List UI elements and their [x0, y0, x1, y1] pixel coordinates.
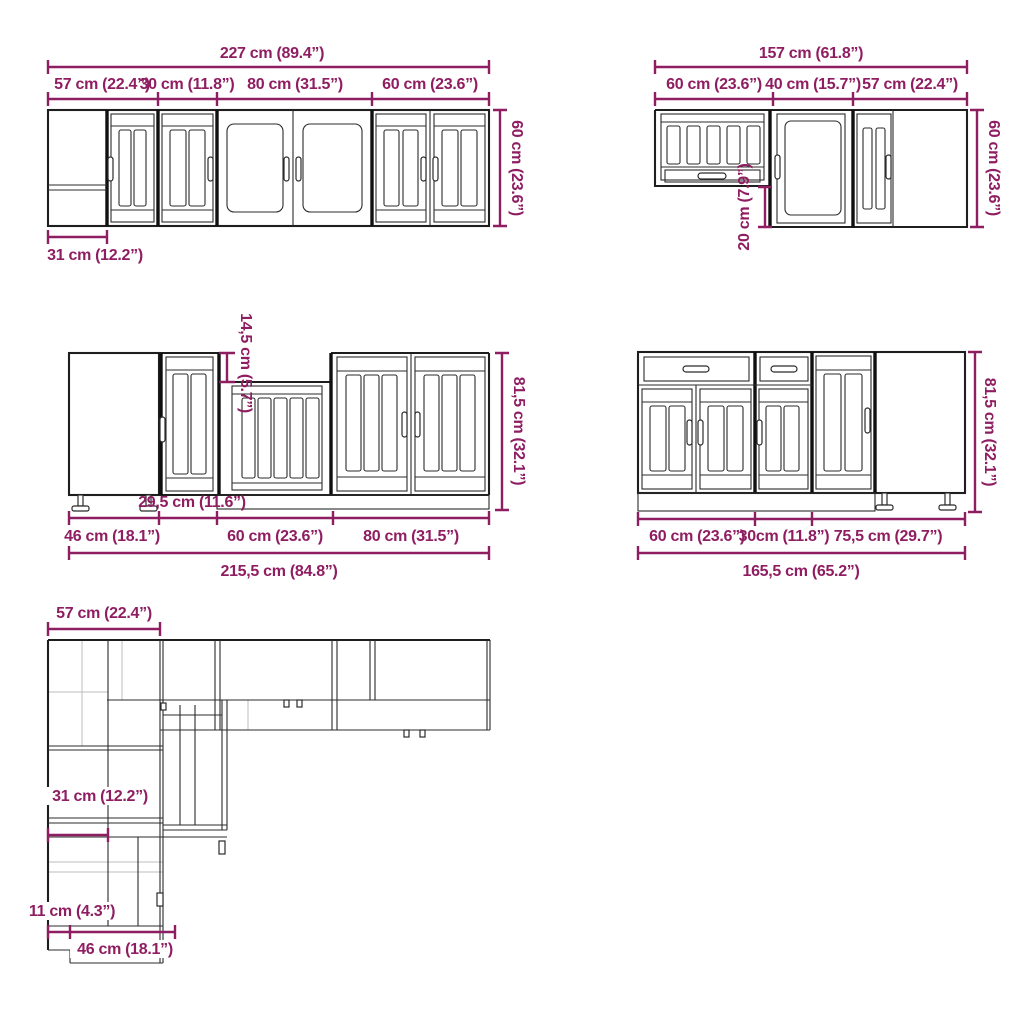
- dim-line-height: [493, 110, 507, 226]
- dim-label-segment-60: 60 cm (23.6”): [666, 76, 762, 93]
- dim-label-total-width: 165,5 cm (65.2”): [742, 563, 859, 580]
- kitchen-cabinet-dimension-sheet: 227 cm (89.4”) 57 cm (22.4”) 30 cm (11.8…: [0, 0, 1024, 1024]
- dimension-drawing-svg: 227 cm (89.4”) 57 cm (22.4”) 30 cm (11.8…: [0, 0, 1024, 1024]
- dim-line-segments: [655, 92, 967, 106]
- dim-line-filler-base-depth: [48, 925, 175, 939]
- figure-wall-run-left: 227 cm (89.4”) 57 cm (22.4”) 30 cm (11.8…: [47, 45, 525, 264]
- dim-label-segment-755: 75,5 cm (29.7”): [834, 528, 942, 545]
- dim-line-segments: [69, 511, 489, 525]
- dim-label-wall-depth: 31 cm (12.2”): [52, 788, 148, 805]
- dim-label-segment-30: 30cm (11.8”): [739, 528, 830, 545]
- figure-wall-run-right: 157 cm (61.8”) 60 cm (23.6”) 40 cm (15.7…: [655, 45, 1002, 251]
- dim-line-segments: [48, 92, 489, 106]
- dim-label-corner-depth: 31 cm (12.2”): [47, 247, 143, 264]
- figure-plan-view: 57 cm (22.4”) 31 cm (12.2”) 11 cm (4.3”)…: [20, 605, 490, 963]
- dim-label-segment-30: 30 cm (11.8”): [140, 76, 235, 93]
- figure-base-run-left: 14,5 cm (5.7”) 81,5 cm (32.1”) 29,5 cm (…: [64, 313, 527, 580]
- dim-line-corner-width: [48, 622, 160, 636]
- dim-label-height: 81,5 cm (32.1”): [510, 377, 527, 485]
- dim-line-total: [655, 60, 967, 74]
- plan-door-handles: [157, 700, 425, 906]
- cabinet-legs: [876, 493, 956, 510]
- dim-line-height: [970, 110, 984, 227]
- dim-label-segment-80: 80 cm (31.5”): [363, 528, 459, 545]
- dim-label-hood-offset: 20 cm (7.9”): [736, 163, 753, 250]
- dim-line-height: [495, 353, 509, 510]
- wall-run-left-line-art: [48, 110, 489, 226]
- dim-label-segment-40: 40 cm (15.7”): [765, 76, 861, 93]
- dim-line-total: [69, 546, 489, 560]
- dim-label-total-width: 215,5 cm (84.8”): [220, 563, 337, 580]
- figure-base-run-right: 81,5 cm (32.1”) 60 cm (23.6”) 30cm (11.8…: [638, 352, 998, 580]
- dim-label-height: 60 cm (23.6”): [985, 120, 1002, 216]
- dim-label-total-width: 157 cm (61.8”): [759, 45, 863, 62]
- door-handles: [687, 408, 870, 445]
- wall-run-right-line-art: [655, 110, 967, 227]
- dim-label-segment-46: 46 cm (18.1”): [64, 528, 160, 545]
- base-run-right-line-art: [638, 352, 965, 511]
- dim-line-total: [48, 60, 489, 74]
- dim-label-segment-60: 60 cm (23.6”): [649, 528, 745, 545]
- dim-label-corner-width: 57 cm (22.4”): [56, 605, 152, 622]
- dim-label-segment-295: 29,5 cm (11.6”): [138, 494, 246, 511]
- dim-label-segment-57: 57 cm (22.4”): [862, 76, 958, 93]
- dim-label-segment-60: 60 cm (23.6”): [382, 76, 478, 93]
- dim-label-total-width: 227 cm (89.4”): [220, 45, 324, 62]
- dim-label-segment-60: 60 cm (23.6”): [227, 528, 323, 545]
- dim-label-segment-57: 57 cm (22.4”): [54, 76, 150, 93]
- base-run-left-line-art: [69, 353, 489, 511]
- dim-line-sink-recess: [219, 353, 235, 382]
- dim-label-segment-80: 80 cm (31.5”): [247, 76, 343, 93]
- dim-label-sink-recess: 14,5 cm (5.7”): [237, 313, 254, 413]
- dim-line-corner-depth: [48, 230, 107, 244]
- dim-label-height: 60 cm (23.6”): [508, 120, 525, 216]
- dim-label-height: 81,5 cm (32.1”): [981, 378, 998, 486]
- dim-line-segments: [638, 512, 965, 526]
- dim-label-base-depth: 46 cm (18.1”): [77, 941, 173, 958]
- dim-line-height: [968, 352, 982, 512]
- dim-line-total: [638, 546, 965, 560]
- dim-label-filler: 11 cm (4.3”): [29, 903, 115, 920]
- dim-line-wall-depth: [48, 828, 108, 842]
